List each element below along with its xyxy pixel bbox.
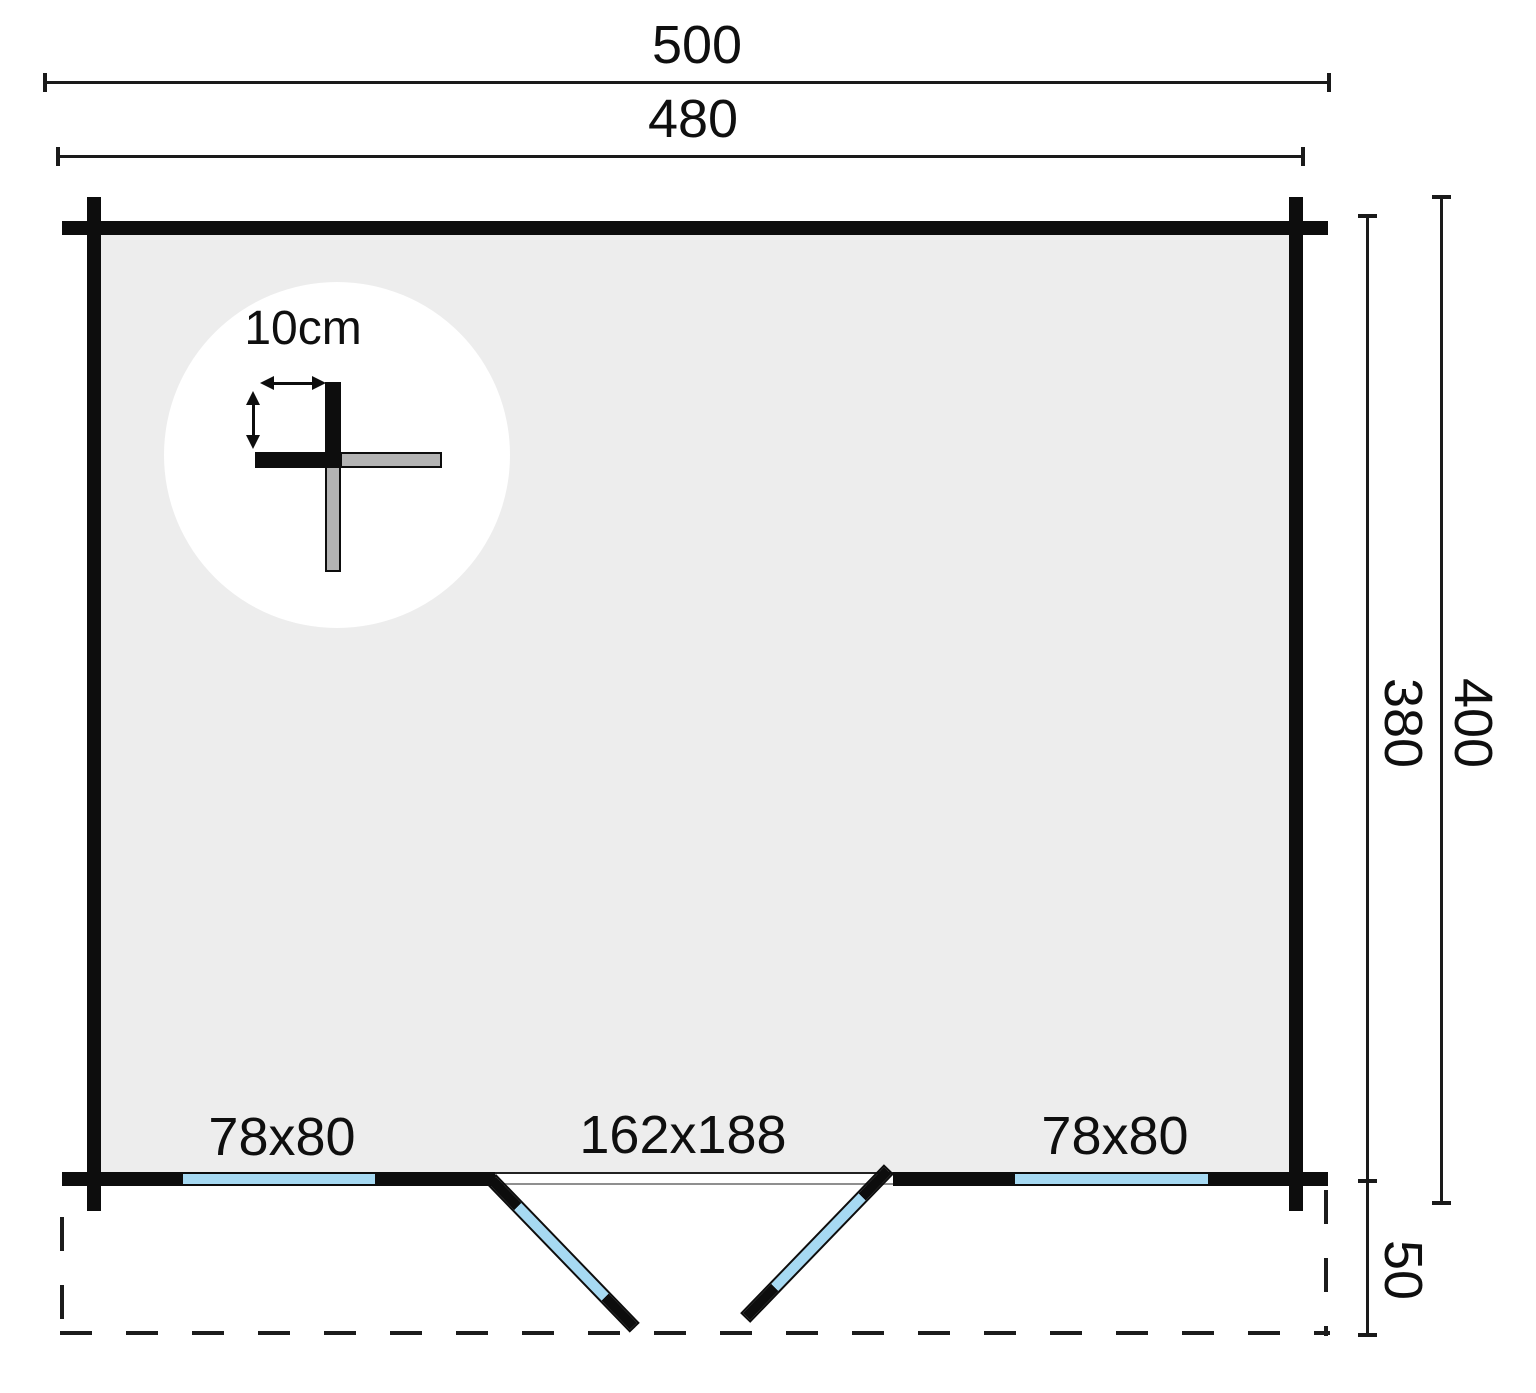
width-arrow-icon [271, 382, 315, 385]
wall-thickness-label: 10cm [203, 300, 403, 358]
bottom-wall-segment [62, 1172, 183, 1186]
dim-line-outer-width [45, 81, 1330, 84]
terrace-outline-right [1324, 1190, 1328, 1336]
window-left [183, 1172, 375, 1186]
top-wall [62, 221, 1328, 235]
dim-tick [1327, 73, 1331, 92]
door-threshold-inner-line [495, 1183, 893, 1185]
door-label: 162x188 [533, 1106, 833, 1164]
bottom-wall-segment [1208, 1172, 1328, 1186]
floor-plan-canvas: 500 480 400 380 50 10cm [0, 0, 1536, 1393]
dim-tick [43, 73, 47, 92]
window-right-label: 78x80 [1015, 1107, 1215, 1165]
arrow-down-head-icon [246, 435, 260, 449]
window-right [1015, 1172, 1208, 1186]
dim-label-overhang-depth: 50 [1374, 1170, 1432, 1370]
door-threshold-outer-line [495, 1172, 893, 1174]
bottom-wall-segment [893, 1172, 1015, 1186]
terrace-outline-bottom [60, 1331, 1330, 1335]
left-wall [87, 197, 101, 1211]
dim-label-outer-depth: 400 [1444, 623, 1502, 823]
dim-label-inner-depth: 380 [1374, 623, 1432, 823]
terrace-outline-left [60, 1217, 64, 1336]
door-leaf-left [486, 1174, 640, 1333]
door-leaf-right [740, 1164, 894, 1323]
dim-tick [1432, 1201, 1451, 1205]
dim-label-inner-width: 480 [593, 90, 793, 148]
arrow-left-head-icon [260, 376, 274, 390]
height-arrow-icon [252, 402, 255, 438]
dim-line-inner-width [58, 155, 1305, 158]
dim-label-outer-width: 500 [597, 16, 797, 74]
dim-tick [1432, 195, 1451, 199]
detail-log-gray-right [340, 452, 442, 468]
dim-tick [56, 147, 60, 166]
detail-log-gray-down [325, 466, 341, 572]
bottom-wall-segment [375, 1172, 495, 1186]
dim-line-inner-depth [1366, 216, 1369, 1183]
window-left-label: 78x80 [182, 1108, 382, 1166]
dim-tick [1358, 214, 1377, 218]
dim-line-overhang-depth [1366, 1183, 1369, 1336]
dim-tick [1301, 147, 1305, 166]
right-wall [1289, 197, 1303, 1211]
arrow-up-head-icon [246, 391, 260, 405]
arrow-right-head-icon [312, 376, 326, 390]
